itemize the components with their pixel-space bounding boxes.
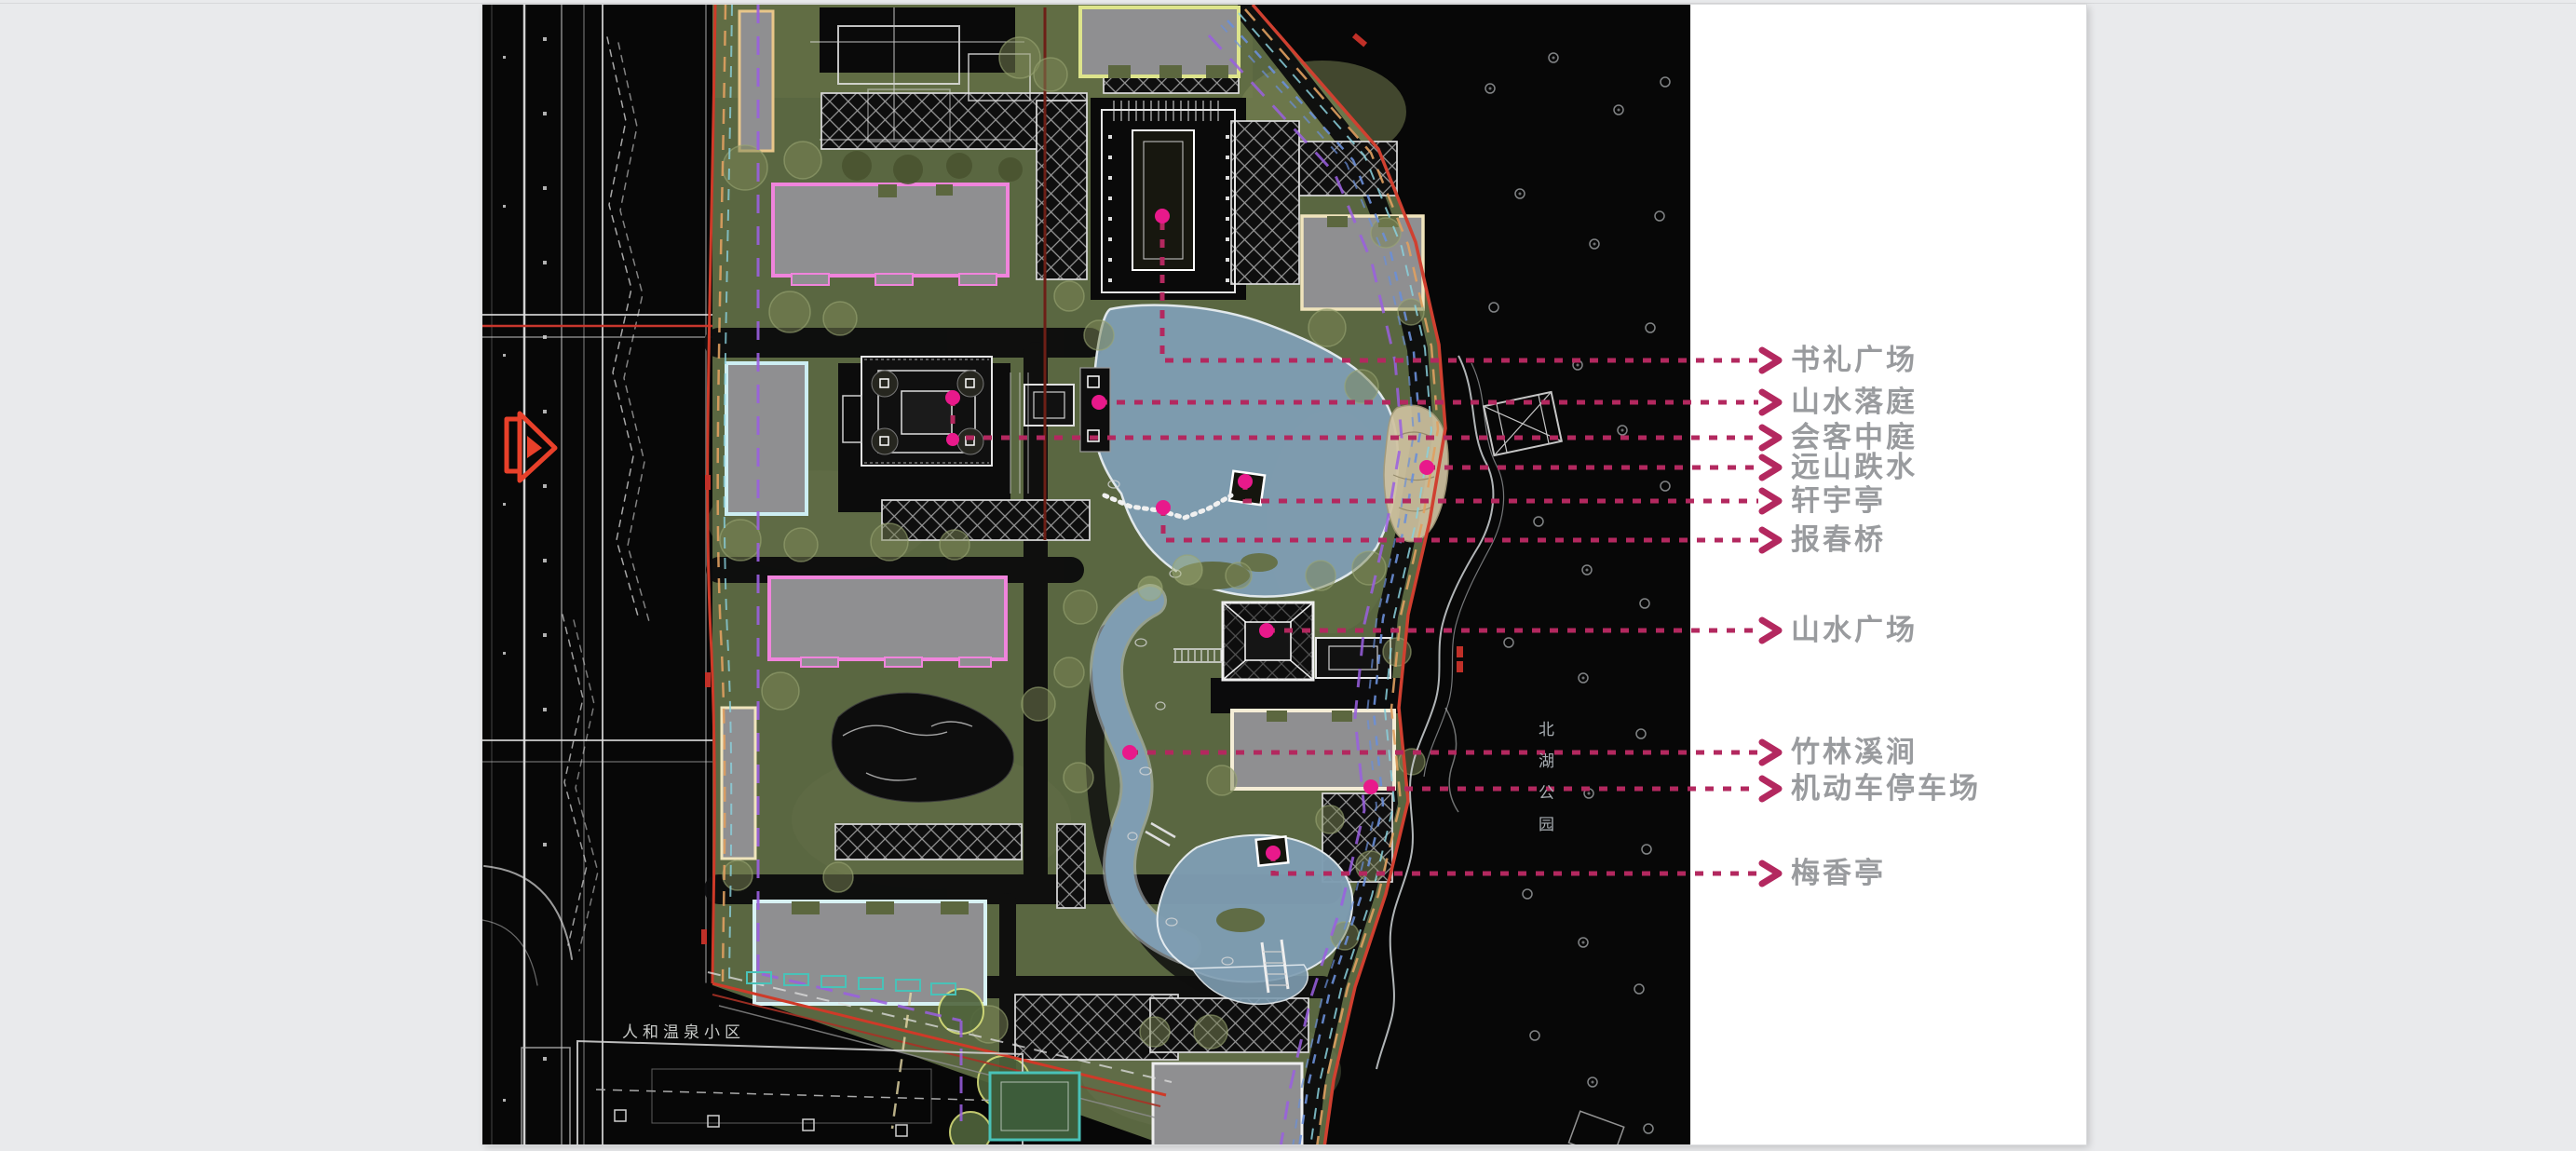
callout-label-bamboo-stream: 竹林溪涧	[1791, 737, 1918, 768]
callout-label-guest-atrium: 会客中庭	[1791, 422, 1918, 454]
adjacent-park-label: 北湖公园	[1533, 721, 1556, 847]
leader-arrow-icons	[1762, 350, 1779, 884]
callout-label-baochun-bridge: 报春桥	[1791, 524, 1886, 556]
callout-label-shanshui-plaza: 山水广场	[1791, 615, 1918, 646]
neighbor-area-label: 人和温泉小区	[622, 1019, 745, 1042]
callout-label-xuanyu-pavilion: 轩宇亭	[1791, 485, 1886, 517]
plan-drawing	[482, 5, 1690, 1151]
garden-pool	[990, 1073, 1079, 1140]
callout-label-mountain-cascade: 远山跌水	[1791, 452, 1918, 483]
callout-label-parking-lot: 机动车停车场	[1791, 773, 1981, 805]
site-plan-map	[0, 0, 2576, 1151]
callout-label-shanshui-court: 山水落庭	[1791, 386, 1918, 418]
callout-label-shuli-plaza: 书礼广场	[1791, 345, 1918, 376]
callout-label-meixiang-pavilion: 梅香亭	[1791, 858, 1886, 889]
presentation-canvas: { "page": { "background_color": "#e9eaec…	[0, 0, 2576, 1151]
